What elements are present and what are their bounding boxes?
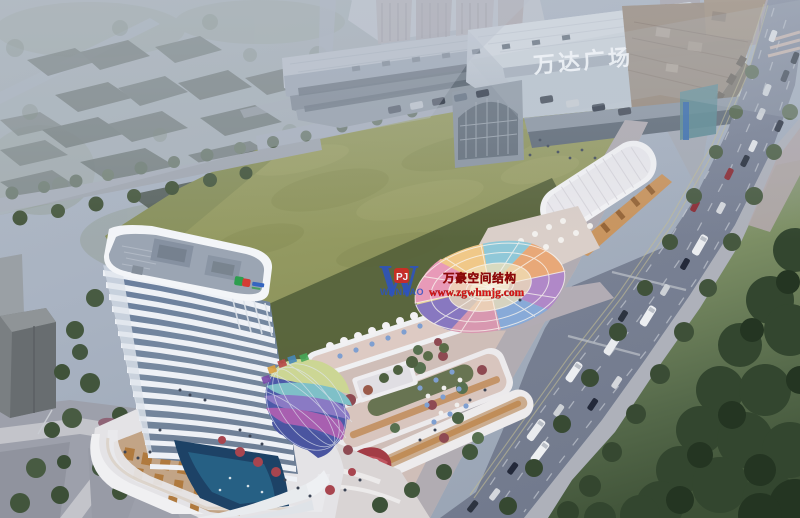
svg-text:www.zgwhmjg.com: www.zgwhmjg.com	[429, 287, 525, 299]
svg-text:PJ: PJ	[396, 272, 408, 283]
svg-text:WANHAO: WANHAO	[380, 287, 424, 297]
svg-text:万豪空间结构: 万豪空间结构	[442, 271, 517, 285]
